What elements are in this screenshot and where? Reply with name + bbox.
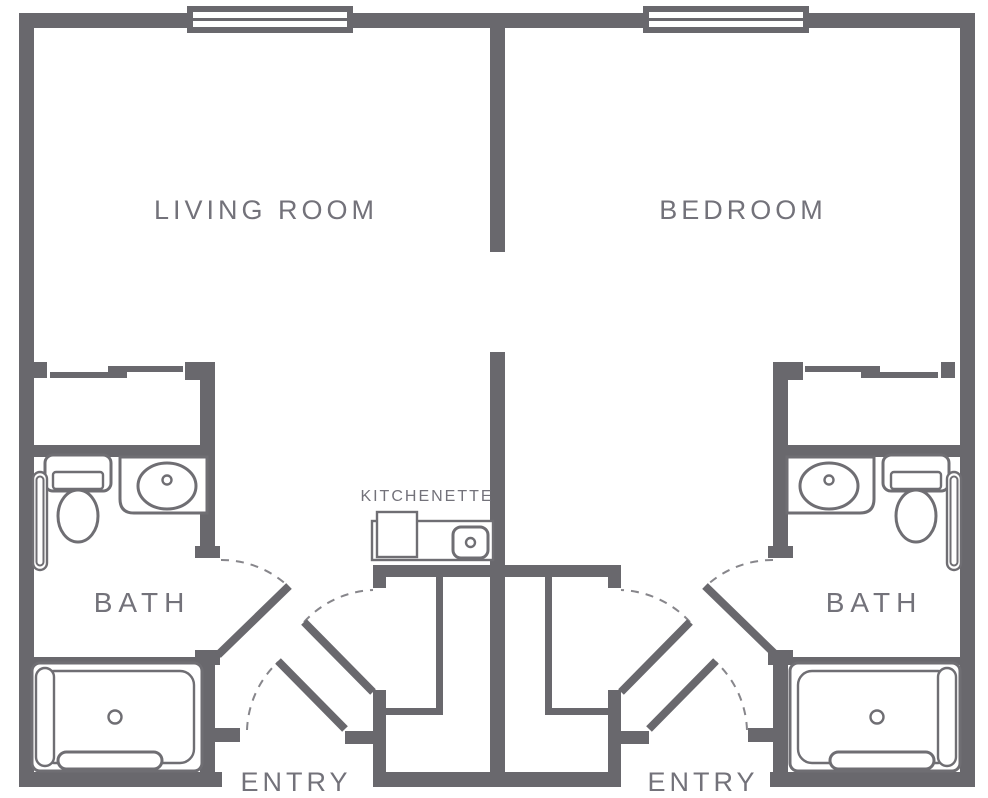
door-arc [621, 590, 690, 622]
drain-icon [109, 711, 122, 724]
toilet-bowl-icon [58, 490, 98, 542]
door-arc [247, 662, 278, 730]
bath-right-label: BATH [826, 587, 923, 618]
door-arc [705, 560, 773, 587]
floor-plan: LIVING ROOM BEDROOM BATH BATH KITCHENETT… [0, 0, 988, 798]
door-arc [221, 560, 289, 587]
toilet-lid-icon [891, 472, 941, 489]
kitchenette-label: KITCHENETTE [360, 488, 493, 505]
faucet-dot-icon [163, 476, 172, 485]
tub-head-icon [938, 668, 956, 766]
right-vestibule-wall-a [608, 565, 621, 588]
tub-handle-icon [830, 752, 934, 769]
appliance-icon [377, 512, 417, 557]
faucet-dot-icon [466, 538, 475, 547]
sink-icon [138, 463, 196, 509]
right-vestibule-wall-b [608, 690, 621, 772]
center-wall-upper [490, 13, 505, 252]
living-room-label: LIVING ROOM [154, 195, 378, 225]
door-arc [304, 590, 373, 622]
wall-jamb [768, 546, 793, 558]
entry-left-label: ENTRY [240, 767, 351, 797]
bath-left-label: BATH [94, 587, 191, 618]
tub-head-icon [36, 668, 54, 766]
sliding-door-icon [805, 366, 880, 372]
wall-endcap [33, 362, 47, 378]
door-panel [278, 661, 345, 729]
wall-stub [345, 731, 373, 744]
wall-endcap [941, 362, 955, 378]
faucet-dot-icon [825, 476, 834, 485]
door-panel [649, 661, 716, 729]
right-wall [960, 13, 975, 787]
tub-handle-icon [58, 752, 162, 769]
window-icon [643, 6, 809, 33]
door-arc [716, 662, 747, 730]
wall-stub [621, 731, 649, 744]
left-closet-wall-v [436, 577, 443, 715]
sliding-door-icon [50, 372, 127, 378]
sliding-door-icon [861, 372, 938, 378]
wall-stub [748, 728, 773, 742]
toilet-lid-icon [53, 472, 103, 489]
floor-plan-canvas: LIVING ROOM BEDROOM BATH BATH KITCHENETT… [0, 0, 988, 798]
drain-icon [871, 711, 884, 724]
grab-bar-icon [947, 472, 961, 570]
grab-bar-icon [33, 472, 47, 570]
entry-right-label: ENTRY [647, 767, 758, 797]
door-panel [705, 586, 776, 655]
right-bath-wall-lower [773, 650, 788, 772]
door-panel [304, 622, 373, 692]
door-panel [218, 586, 289, 655]
left-closet-wall-h [386, 708, 443, 715]
window-icon [187, 6, 353, 33]
left-vestibule-wall-a [373, 565, 386, 588]
sliding-door-icon [108, 366, 183, 372]
left-vestibule-wall-b [373, 690, 386, 772]
vestibule-top-wall [373, 565, 621, 577]
bottom-wall-left [19, 772, 222, 787]
wall-jamb [195, 546, 220, 558]
wall-stub [215, 728, 240, 742]
bottom-wall-right [770, 772, 975, 787]
sink-icon [800, 463, 858, 509]
right-closet-wall-h [545, 708, 608, 715]
bedroom-label: BEDROOM [659, 195, 827, 225]
toilet-bowl-icon [896, 490, 936, 542]
door-panel [621, 622, 690, 692]
right-closet-wall-v [545, 577, 552, 715]
kitchenette-fixtures [372, 512, 493, 560]
